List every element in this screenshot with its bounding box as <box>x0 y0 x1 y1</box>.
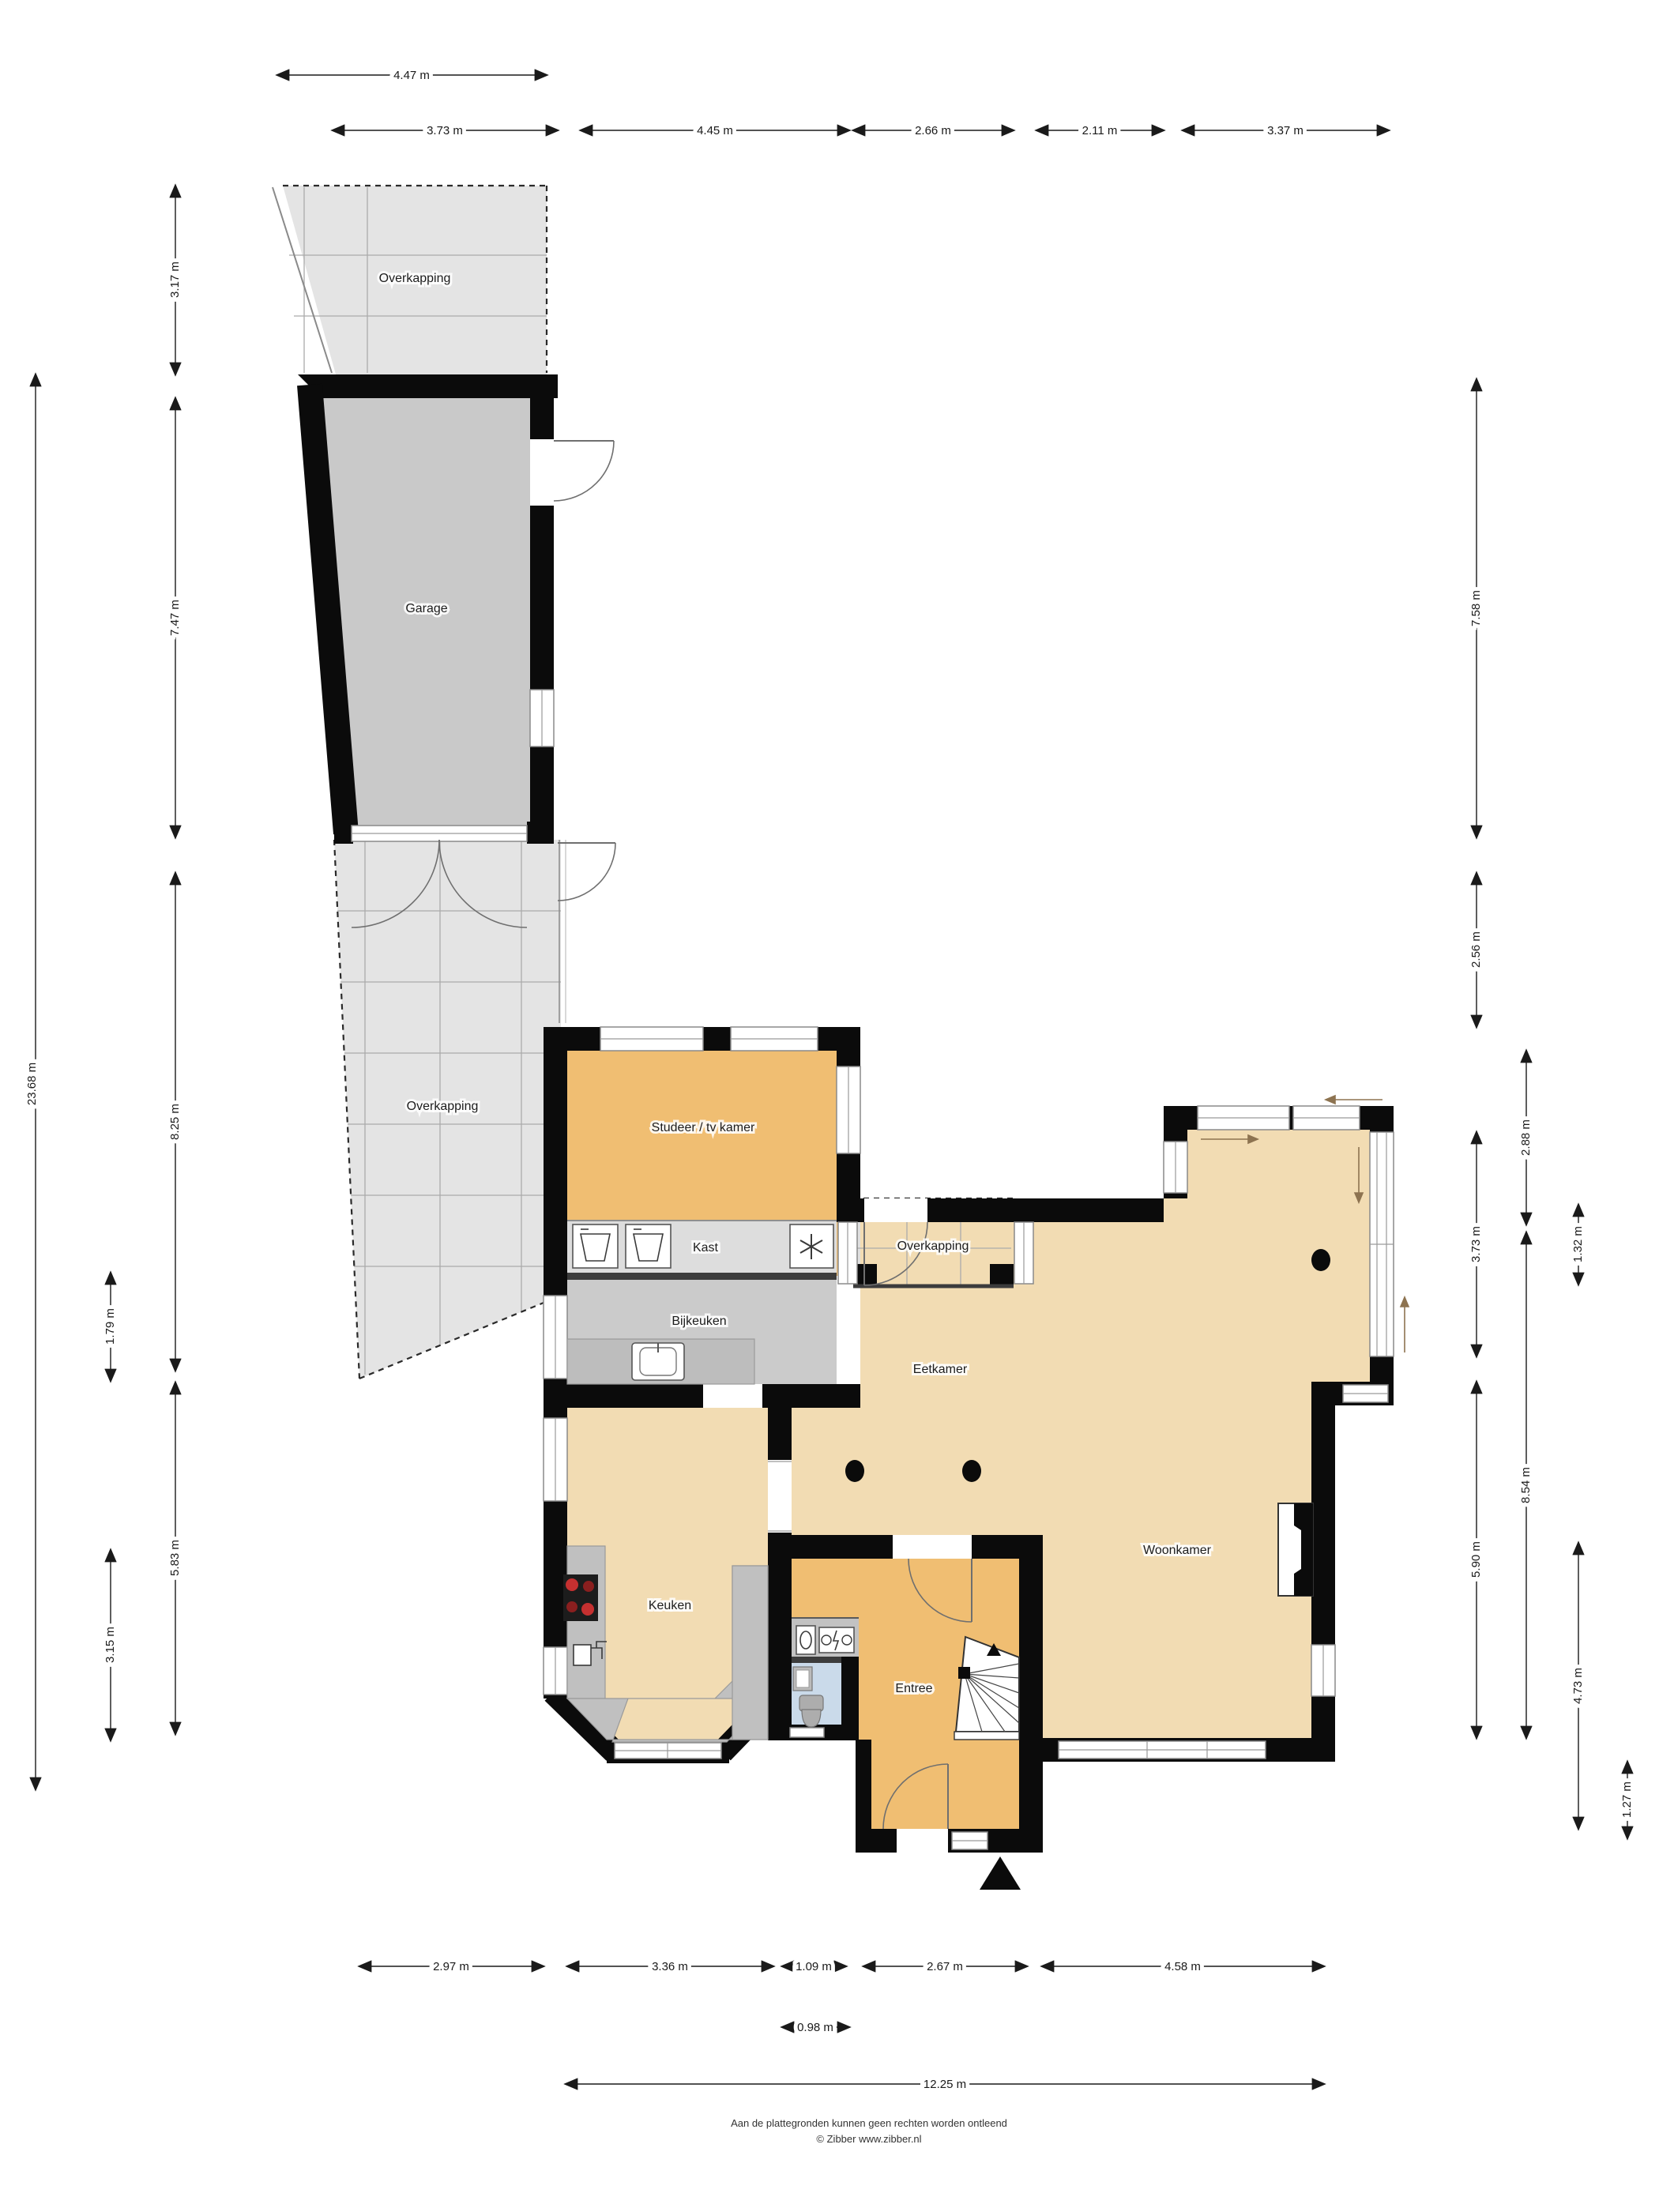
front-door-sidelight <box>952 1832 987 1849</box>
dryer-icon <box>626 1224 671 1268</box>
svg-text:3.37 m: 3.37 m <box>1267 124 1303 137</box>
bijkeuken-sink-icon <box>632 1343 684 1380</box>
overkapping-small-east-window <box>1014 1222 1033 1284</box>
bijkeuken-west-window <box>544 1296 567 1379</box>
svg-text:7.47 m: 7.47 m <box>168 600 182 636</box>
toilet-sink-icon <box>793 1667 812 1691</box>
svg-text:3.73 m: 3.73 m <box>1469 1226 1483 1262</box>
lamp-icon <box>1311 1249 1330 1271</box>
lamp-icon <box>962 1460 981 1482</box>
svg-text:3.17 m: 3.17 m <box>168 261 182 298</box>
electrical-panel-icon <box>819 1627 854 1653</box>
svg-text:3.15 m: 3.15 m <box>103 1627 117 1663</box>
washing-machine-icon <box>573 1224 618 1268</box>
svg-text:12.25 m: 12.25 m <box>924 2078 966 2091</box>
woonkamer-label: Woonkamer <box>1143 1544 1212 1557</box>
entree-front-wall <box>856 1829 1043 1853</box>
garage-east-window <box>530 690 554 747</box>
svg-text:4.47 m: 4.47 m <box>393 69 430 82</box>
woonkamer-east-window <box>1311 1645 1335 1696</box>
keuken-counter-right <box>732 1566 768 1740</box>
overkapping-small-west-window <box>838 1222 857 1284</box>
keuken-west-window-1 <box>544 1418 567 1501</box>
svg-text:2.88 m: 2.88 m <box>1519 1119 1533 1156</box>
kast-bijkeuken-divider <box>567 1273 837 1280</box>
svg-text:4.58 m: 4.58 m <box>1164 1960 1201 1973</box>
keuken-south-window <box>615 1743 721 1759</box>
svg-text:1.32 m: 1.32 m <box>1571 1226 1585 1262</box>
svg-text:2.67 m: 2.67 m <box>927 1960 963 1973</box>
garage-label: Garage <box>405 602 447 615</box>
svg-text:2.11 m: 2.11 m <box>1082 124 1118 137</box>
svg-text:3.73 m: 3.73 m <box>427 124 463 137</box>
keuken-east-wall <box>768 1384 792 1740</box>
studeer-east-window <box>837 1066 860 1153</box>
svg-text:4.73 m: 4.73 m <box>1571 1668 1585 1704</box>
svg-text:7.58 m: 7.58 m <box>1469 590 1483 626</box>
entree-east-wall <box>1019 1535 1043 1853</box>
keuken-counter-left <box>567 1546 605 1698</box>
wing-north-windows <box>1198 1106 1360 1130</box>
svg-text:2.97 m: 2.97 m <box>433 1960 469 1973</box>
svg-text:8.54 m: 8.54 m <box>1519 1467 1533 1503</box>
floorplan-page: Overkapping Garage Overkapping Studeer /… <box>0 0 1659 2212</box>
boiler-icon <box>796 1626 815 1654</box>
woonkamer-east-wall <box>1311 1382 1335 1762</box>
overkapping-small-label: Overkapping <box>897 1240 969 1253</box>
svg-text:3.36 m: 3.36 m <box>652 1960 688 1973</box>
svg-text:8.25 m: 8.25 m <box>168 1104 182 1140</box>
fireplace-icon <box>1278 1503 1313 1596</box>
overkapping-top-label: Overkapping <box>379 272 451 285</box>
svg-text:2.66 m: 2.66 m <box>915 124 951 137</box>
studeer-label: Studeer / tv kamer <box>652 1121 755 1134</box>
toilet-south-window <box>790 1728 824 1737</box>
eetkamer-label: Eetkamer <box>913 1363 968 1376</box>
keuken-label: Keuken <box>649 1599 691 1612</box>
footer-credit: © Zibber www.zibber.nl <box>816 2133 921 2145</box>
studeer-north-window-1 <box>600 1027 703 1051</box>
toilet-east-wall <box>841 1657 859 1725</box>
wing-east-sliding-door <box>1370 1132 1394 1356</box>
bijkeuken-south-wall <box>544 1384 860 1408</box>
studeer-north-window-2 <box>731 1027 818 1051</box>
svg-text:4.45 m: 4.45 m <box>697 124 733 137</box>
svg-text:1.27 m: 1.27 m <box>1620 1781 1634 1818</box>
svg-text:23.68 m: 23.68 m <box>25 1063 39 1105</box>
footer-disclaimer: Aan de plattegronden kunnen geen rechten… <box>731 2117 1007 2129</box>
overkapping-strip-label: Overkapping <box>407 1100 479 1113</box>
garage-north-wall <box>298 374 558 398</box>
floorplan-canvas: Overkapping Garage Overkapping Studeer /… <box>0 0 1659 2212</box>
entree-west-wall <box>856 1740 871 1829</box>
svg-text:0.98 m: 0.98 m <box>797 2021 833 2034</box>
wing-step-window <box>1343 1385 1388 1402</box>
keuken-west-window-2 <box>544 1647 567 1695</box>
wing-west-window <box>1164 1142 1187 1193</box>
kast-label: Kast <box>693 1241 719 1255</box>
bijkeuken-label: Bijkeuken <box>671 1315 726 1328</box>
svg-text:2.56 m: 2.56 m <box>1469 931 1483 968</box>
woonkamer-south-window <box>1059 1741 1266 1759</box>
freezer-icon <box>790 1224 833 1268</box>
svg-text:1.09 m: 1.09 m <box>796 1960 832 1973</box>
svg-text:5.83 m: 5.83 m <box>168 1540 182 1576</box>
stove-icon <box>563 1574 598 1621</box>
svg-text:1.79 m: 1.79 m <box>103 1308 117 1345</box>
entree-label: Entree <box>895 1682 932 1695</box>
lamp-icon <box>845 1460 864 1482</box>
svg-text:5.90 m: 5.90 m <box>1469 1541 1483 1578</box>
